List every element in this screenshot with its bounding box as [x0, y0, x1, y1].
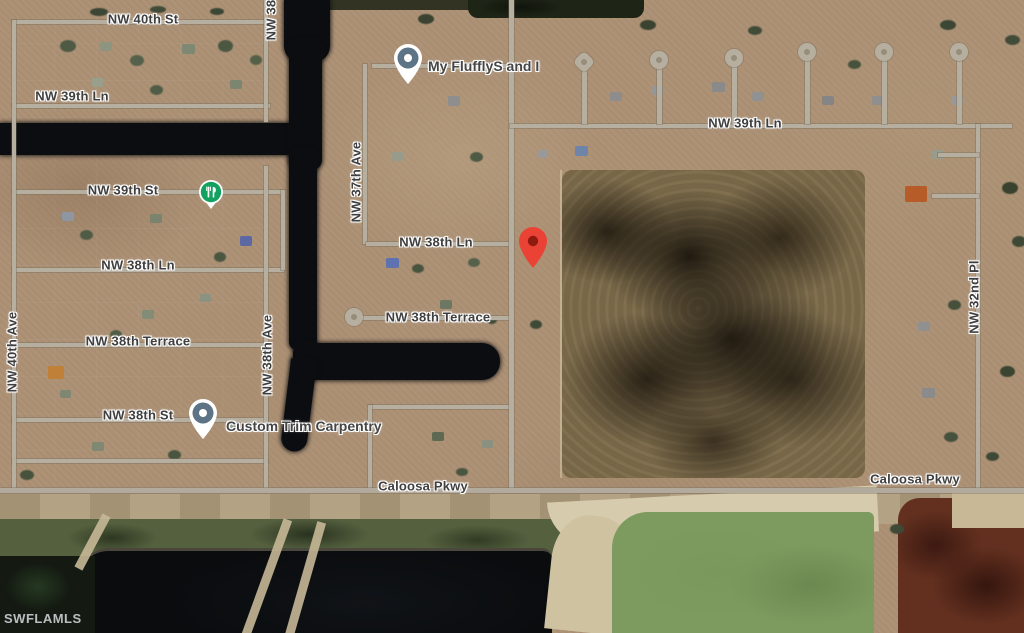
business-pin-custom-trim[interactable] — [187, 398, 219, 445]
street-label-nw-40th-ave: NW 40th Ave — [5, 312, 20, 393]
tree-blob — [1002, 182, 1018, 194]
satellite-map[interactable]: NW 40th St NW 39th Ln NW 39th St NW 38th… — [0, 0, 1024, 633]
house-roof — [100, 42, 112, 51]
tree-blob — [150, 85, 163, 95]
tree-blob — [90, 8, 108, 16]
sand-patch — [952, 490, 1024, 528]
road-unnamed-left — [12, 459, 268, 463]
tree-blob — [80, 230, 93, 240]
street-label-nw-39th-ln-left: NW 39th Ln — [35, 89, 109, 104]
tree-blob — [456, 468, 468, 476]
house-roof — [392, 152, 403, 161]
business-label-my-flufflys[interactable]: My FlufflyS and I — [428, 58, 539, 74]
street-label-nw-38th-terrace-left: NW 38th Terrace — [86, 334, 191, 349]
house-roof — [440, 300, 452, 309]
business-pin-icon — [187, 398, 219, 440]
tree-blob — [1005, 35, 1020, 45]
parcel-boundary-track — [560, 170, 562, 478]
street-label-caloosa-pkwy-right: Caloosa Pkwy — [870, 472, 960, 487]
house-roof — [182, 44, 195, 54]
house-roof — [432, 432, 444, 441]
vegetated-parcel — [562, 170, 865, 478]
tree-blob — [210, 8, 224, 15]
street-label-nw-38th-st: NW 38th St — [103, 408, 174, 423]
culdesac-stem — [957, 52, 962, 124]
culdesac-bulb — [875, 43, 893, 61]
culdesac-bulb — [950, 43, 968, 61]
house-roof — [48, 366, 64, 379]
tree-blob — [1000, 366, 1015, 377]
culdesac-stem — [657, 60, 662, 124]
street-label-nw-37th-ave: NW 37th Ave — [349, 142, 364, 223]
tree-blob — [530, 320, 542, 329]
tree-blob — [940, 20, 956, 30]
tree-blob — [944, 432, 958, 442]
road-canalside — [281, 190, 285, 270]
tree-blob — [748, 26, 762, 35]
road-nw-40th-ave — [12, 20, 16, 490]
restaurant-poi-pin[interactable] — [197, 179, 225, 216]
red-location-pin-icon — [519, 227, 547, 269]
street-label-nw-39th-ln-right: NW 39th Ln — [708, 116, 782, 131]
street-label-caloosa-pkwy-mid: Caloosa Pkwy — [378, 479, 468, 494]
watermark-swflamls: SWFLAMLS — [4, 611, 82, 626]
canal — [293, 343, 500, 380]
culdesac-bulb — [798, 43, 816, 61]
house-roof — [386, 258, 399, 268]
restaurant-poi-icon — [197, 179, 225, 211]
tree-blob — [130, 55, 144, 66]
canal — [289, 150, 317, 350]
house-roof — [610, 92, 622, 101]
road-nw-37th-ave — [363, 64, 367, 244]
house-roof — [922, 388, 935, 398]
tree-blob — [218, 40, 233, 52]
street-label-nw-38th-terrace-mid: NW 38th Terrace — [386, 310, 491, 325]
business-pin-my-flufflys[interactable] — [392, 43, 424, 90]
tree-blob — [468, 258, 480, 267]
street-label-nw-39th-st: NW 39th St — [88, 183, 159, 198]
tree-line — [330, 0, 470, 10]
road-stub — [938, 153, 979, 157]
house-roof — [142, 310, 154, 319]
tree-blob — [412, 264, 424, 273]
house-roof — [712, 82, 725, 92]
house-roof — [60, 390, 71, 398]
house-roof — [482, 440, 493, 448]
tree-blob — [250, 55, 262, 65]
house-roof — [752, 92, 764, 101]
canal — [0, 123, 300, 155]
lake — [82, 548, 552, 633]
road-nw-39th-ln-left — [12, 104, 270, 108]
tree-blob — [890, 524, 904, 534]
red-location-pin[interactable] — [519, 227, 547, 274]
house-roof — [62, 212, 74, 221]
house-roof — [918, 322, 930, 331]
tree-blob — [948, 300, 961, 310]
house-roof — [92, 442, 104, 451]
house-roof — [230, 80, 242, 89]
tree-blob — [1012, 236, 1024, 247]
tree-blob — [20, 470, 34, 480]
culdesac-bulb — [725, 49, 743, 67]
house-roof — [448, 96, 460, 106]
street-label-nw-38th-ln-left: NW 38th Ln — [101, 258, 175, 273]
business-pin-icon — [392, 43, 424, 85]
culdesac-bulb — [345, 308, 363, 326]
road-unnamed-mid — [369, 405, 512, 409]
house-roof — [575, 146, 588, 156]
tree-blob — [986, 452, 999, 461]
road-caloosa-pkwy — [0, 488, 1024, 493]
house-roof — [200, 294, 211, 302]
culdesac-bulb — [650, 51, 668, 69]
street-label-nw-38-partial: NW 38 — [264, 0, 279, 40]
culdesac-stem — [732, 58, 737, 124]
tree-blob — [60, 40, 76, 52]
street-label-nw-38th-ave: NW 38th Ave — [260, 315, 275, 396]
culdesac-stem — [805, 52, 810, 124]
tree-line — [468, 0, 644, 18]
house-roof — [150, 214, 162, 223]
culdesac-stem — [882, 52, 887, 124]
house-roof — [905, 186, 927, 202]
house-roof — [822, 96, 834, 105]
tree-blob — [640, 20, 656, 30]
house-roof — [240, 236, 252, 246]
tree-blob — [418, 14, 434, 24]
house-roof — [92, 78, 103, 87]
house-roof — [538, 150, 548, 158]
tree-blob — [470, 152, 483, 162]
street-label-nw-38th-ln-mid: NW 38th Ln — [399, 235, 473, 250]
green-field — [612, 512, 874, 633]
tree-blob — [848, 60, 861, 69]
street-label-nw-32nd-pl: NW 32nd Pl — [967, 260, 982, 334]
street-label-nw-40th-st: NW 40th St — [108, 12, 179, 27]
tree-blob — [214, 252, 226, 262]
business-label-custom-trim[interactable]: Custom Trim Carpentry — [226, 418, 382, 434]
road-stub — [932, 194, 979, 198]
